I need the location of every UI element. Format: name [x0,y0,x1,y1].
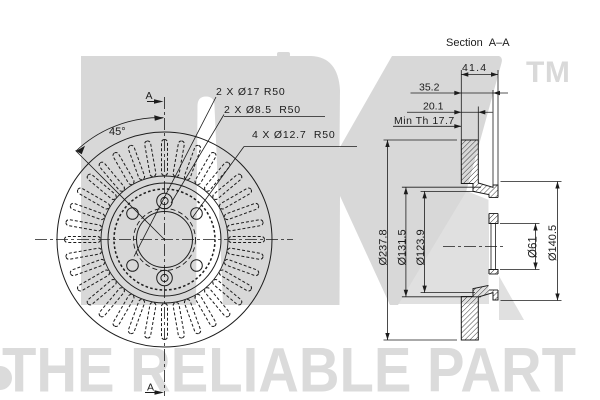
svg-text:A: A [146,90,153,102]
svg-text:41.4: 41.4 [462,62,487,74]
svg-text:Ø123.9: Ø123.9 [415,229,427,265]
svg-text:TM: TM [526,56,570,89]
svg-text:2 X Ø8.5 R50: 2 X Ø8.5 R50 [224,104,301,116]
svg-text:45°: 45° [109,126,126,138]
svg-text:Ø131.5: Ø131.5 [397,229,409,265]
svg-text:Ø61: Ø61 [528,236,540,258]
svg-text:35.2: 35.2 [419,82,440,94]
svg-text:2 X Ø17 R50: 2 X Ø17 R50 [216,86,286,98]
svg-text:Section A–A: Section A–A [446,37,510,49]
svg-text:Ø140.5: Ø140.5 [547,225,559,261]
svg-text:20.1: 20.1 [423,101,444,113]
svg-text:4 X Ø12.7 R50: 4 X Ø12.7 R50 [252,129,336,141]
svg-text:Ø237.8: Ø237.8 [378,229,390,265]
svg-text:A: A [147,382,154,394]
svg-text:Min Th 17.7: Min Th 17.7 [394,115,455,127]
svg-text:THE RELIABLE PART: THE RELIABLE PART [2,336,576,400]
